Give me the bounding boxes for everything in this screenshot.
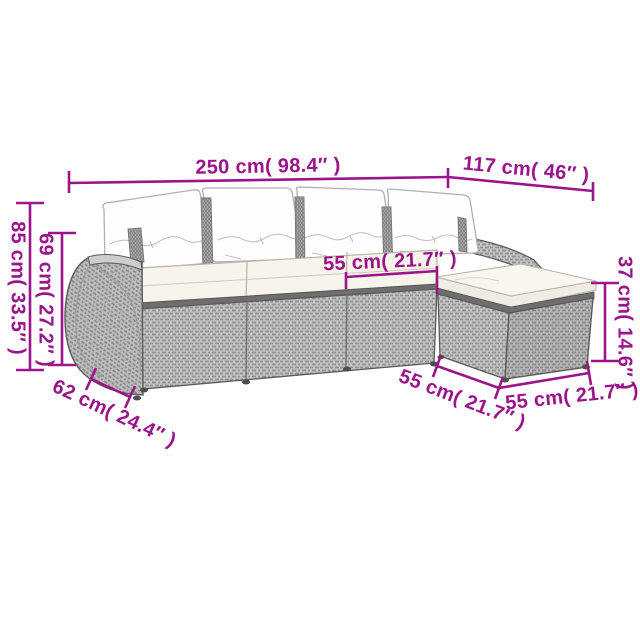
sofa-left-armrest	[65, 255, 143, 395]
dim-label-overall-width: 250 cm( 98.4″ )	[195, 154, 341, 180]
sofa-illustration	[65, 187, 596, 401]
dimension-diagram: 250 cm( 98.4″ ) 117 cm( 46″ ) 85 cm( 33.…	[0, 0, 640, 640]
ottoman	[436, 264, 596, 379]
back-pillow-2	[202, 188, 303, 262]
dim-label-overall-height: 85 cm( 33.5″ )	[6, 221, 29, 355]
back-pillow-3	[296, 187, 393, 258]
dim-label-back-height: 69 cm( 27.2″ )	[34, 233, 57, 367]
sofa-diagram-canvas	[0, 0, 640, 640]
dim-label-ottoman-height: 37 cm( 14.6″ )	[613, 256, 636, 390]
